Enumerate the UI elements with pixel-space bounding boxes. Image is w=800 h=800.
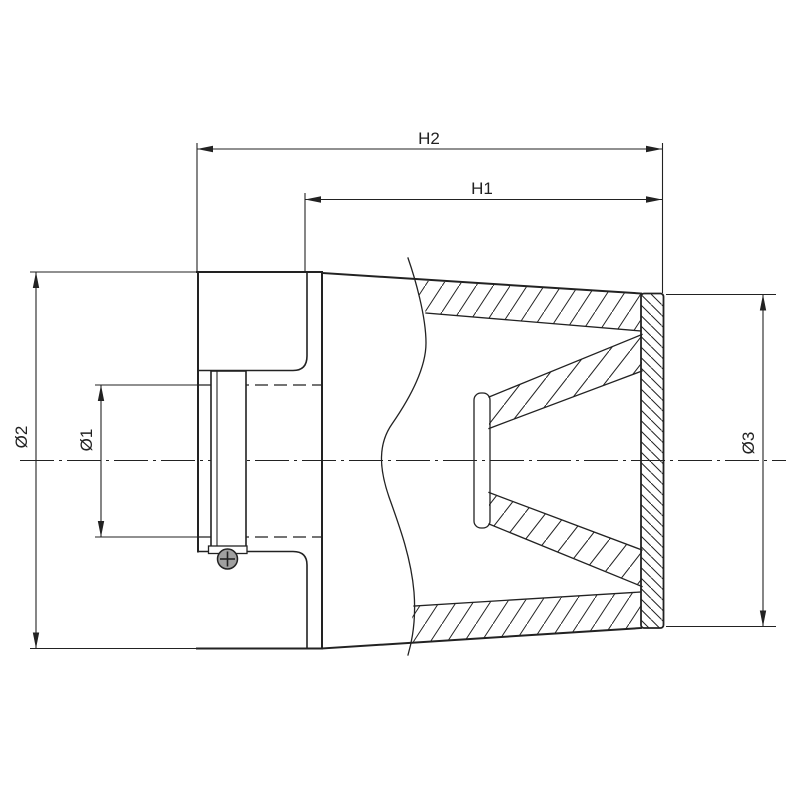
dimension-h2: H2 xyxy=(197,129,663,293)
arrow-left-icon xyxy=(197,146,213,152)
dimension-d2-label: Ø2 xyxy=(12,426,31,449)
drawing-canvas: H2 H1 Ø2 Ø1 Ø3 xyxy=(0,0,800,800)
dimension-h2-label: H2 xyxy=(418,129,440,148)
neck-shoulder-top xyxy=(198,272,307,371)
inner-cone-bottom-band xyxy=(489,493,642,587)
arrow-down-icon xyxy=(760,611,766,627)
filter-media-top-band xyxy=(413,280,641,331)
arrow-right-icon xyxy=(646,196,662,202)
dimension-h1: H1 xyxy=(305,179,662,272)
arrow-up-icon xyxy=(33,272,39,288)
inner-cone-top-band xyxy=(489,335,642,429)
clamp-screw xyxy=(218,549,238,569)
hose-clamp xyxy=(209,371,248,554)
arrow-right-icon xyxy=(646,146,662,152)
dimension-d3-label: Ø3 xyxy=(739,432,758,455)
dimension-d1-label: Ø1 xyxy=(77,429,96,452)
neck-shoulder-bottom xyxy=(198,552,307,649)
arrow-left-icon xyxy=(305,196,321,202)
break-line xyxy=(381,258,426,655)
arrow-up-icon xyxy=(98,385,104,401)
end-cap xyxy=(641,294,664,629)
arrow-down-icon xyxy=(33,633,39,649)
arrow-down-icon xyxy=(98,521,104,537)
arrow-up-icon xyxy=(760,295,766,311)
air-filter-technical-drawing: H2 H1 Ø2 Ø1 Ø3 xyxy=(0,0,800,800)
dimension-h1-label: H1 xyxy=(471,179,493,198)
